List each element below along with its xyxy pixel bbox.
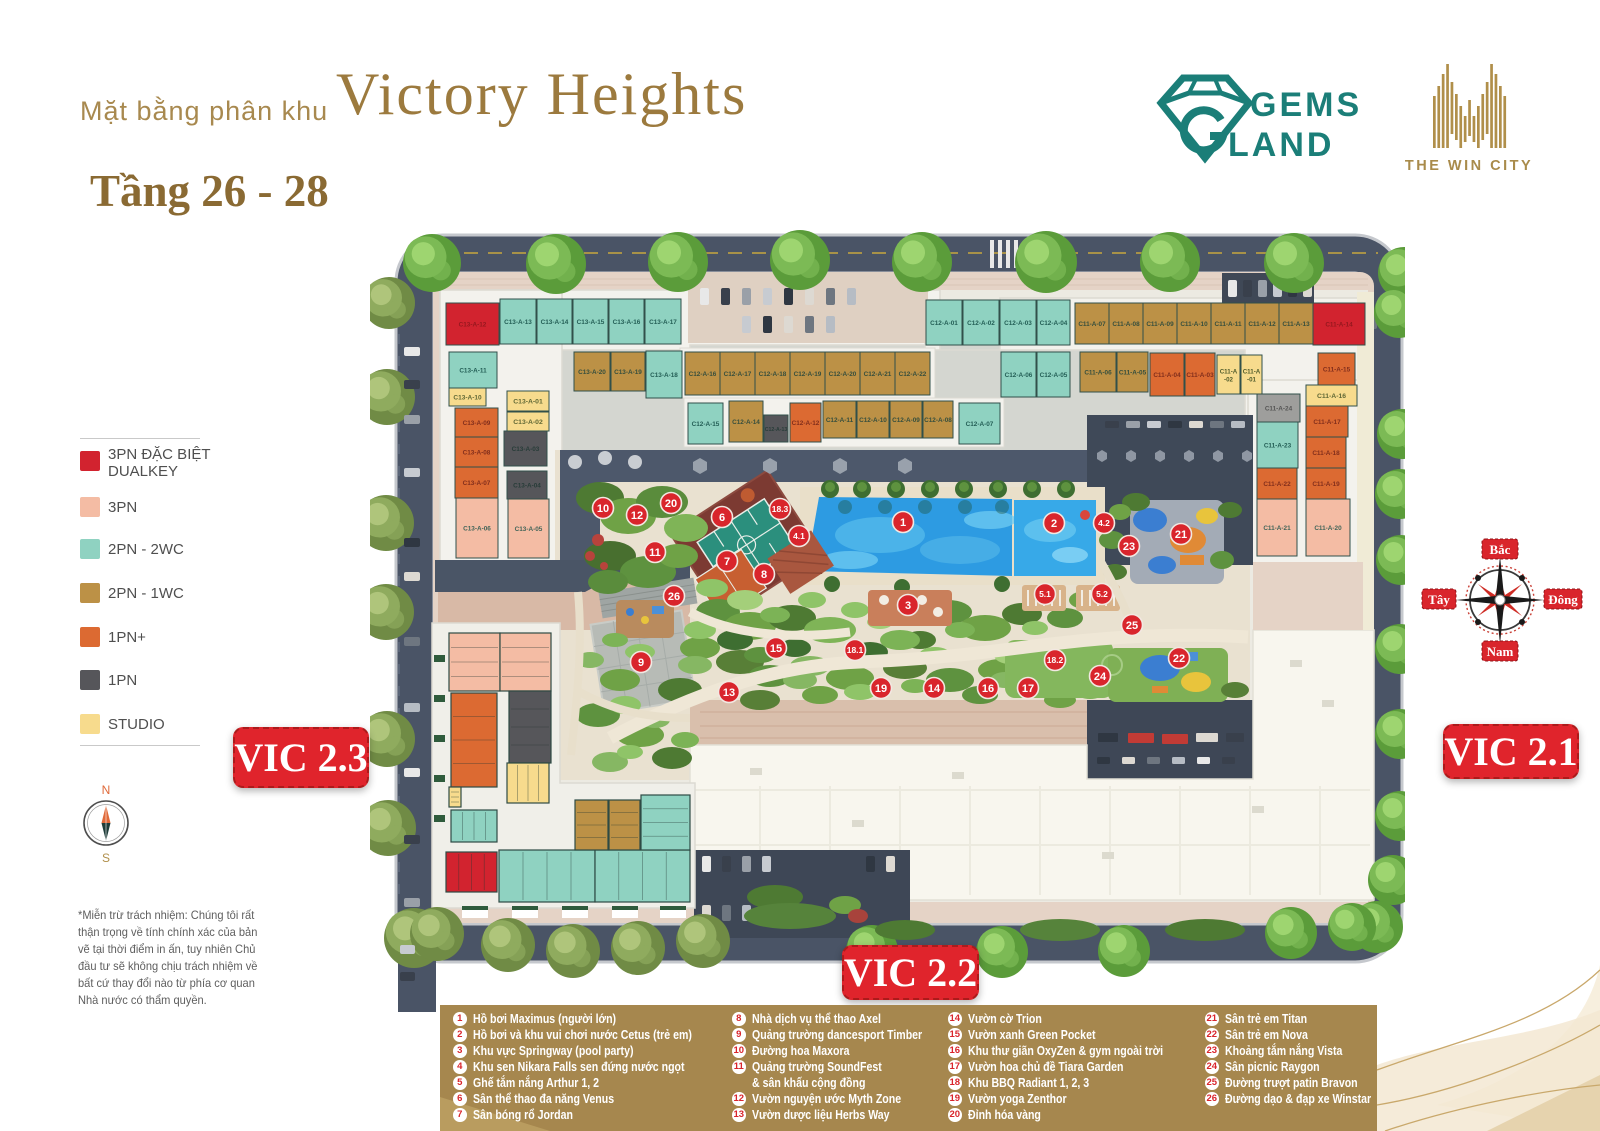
svg-text:4.1: 4.1 [793, 531, 805, 541]
svg-text:C13-A-20: C13-A-20 [578, 369, 606, 376]
svg-text:C13-A-17: C13-A-17 [649, 319, 677, 326]
svg-text:6: 6 [719, 512, 725, 524]
svg-text:C11-A-14: C11-A-14 [1325, 322, 1353, 329]
svg-text:21: 21 [1175, 529, 1187, 541]
svg-text:C11-A-23: C11-A-23 [1264, 443, 1292, 450]
svg-text:C12-A-07: C12-A-07 [966, 421, 994, 428]
svg-text:C12-A-17: C12-A-17 [724, 371, 752, 378]
svg-text:C13-A-19: C13-A-19 [614, 369, 642, 376]
svg-text:C11-A-15: C11-A-15 [1323, 367, 1351, 374]
svg-text:2: 2 [1051, 518, 1057, 530]
svg-text:C11-A-10: C11-A-10 [1180, 321, 1208, 328]
svg-text:C13-A-12: C13-A-12 [459, 322, 487, 329]
svg-text:GEMS: GEMS [1250, 86, 1362, 124]
svg-text:C12-A-03: C12-A-03 [1004, 320, 1032, 327]
svg-text:C13-A-08: C13-A-08 [463, 450, 491, 457]
svg-text:C12-A-02: C12-A-02 [967, 320, 995, 327]
svg-text:C13-A-02: C13-A-02 [513, 419, 543, 426]
svg-text:14: 14 [928, 683, 941, 695]
svg-text:C11-A: C11-A [1243, 369, 1261, 376]
svg-text:-01: -01 [1247, 377, 1257, 384]
svg-text:7: 7 [724, 556, 730, 568]
svg-text:18.1: 18.1 [847, 645, 864, 655]
svg-text:20: 20 [665, 498, 677, 510]
svg-text:C12-A-20: C12-A-20 [829, 371, 857, 378]
svg-text:C12-A-05: C12-A-05 [1040, 372, 1068, 379]
svg-text:C13-A-16: C13-A-16 [613, 319, 641, 326]
svg-text:C12-A-09: C12-A-09 [892, 417, 920, 424]
svg-text:5.2: 5.2 [1096, 589, 1108, 599]
svg-text:C13-A-05: C13-A-05 [515, 526, 543, 533]
svg-text:LAND: LAND [1228, 126, 1334, 164]
svg-text:C12-A-08: C12-A-08 [924, 417, 952, 424]
svg-text:C13-A-18: C13-A-18 [650, 372, 678, 379]
svg-text:C12-A-19: C12-A-19 [794, 371, 822, 378]
svg-text:12: 12 [631, 510, 643, 522]
svg-text:N: N [102, 783, 111, 797]
svg-text:C11-A-16: C11-A-16 [1317, 393, 1346, 400]
svg-text:3: 3 [905, 600, 911, 612]
svg-text:9: 9 [638, 657, 644, 669]
svg-text:C12-A-18: C12-A-18 [759, 371, 787, 378]
svg-text:C11-A-21: C11-A-21 [1263, 525, 1291, 532]
svg-text:THE WIN CITY: THE WIN CITY [1405, 158, 1533, 174]
svg-text:22: 22 [1173, 653, 1185, 665]
svg-text:18.2: 18.2 [1047, 655, 1064, 665]
svg-text:C13-A-09: C13-A-09 [463, 420, 491, 427]
svg-text:C13-A-10: C13-A-10 [453, 395, 482, 402]
svg-text:8: 8 [761, 569, 767, 581]
svg-text:15: 15 [770, 643, 782, 655]
svg-text:25: 25 [1126, 620, 1138, 632]
svg-text:5.1: 5.1 [1039, 589, 1051, 599]
svg-text:C11-A-05: C11-A-05 [1119, 370, 1147, 377]
svg-text:C12-A-16: C12-A-16 [689, 371, 717, 378]
svg-text:C11-A-06: C11-A-06 [1084, 370, 1112, 377]
svg-text:C12-A-14: C12-A-14 [732, 419, 760, 426]
svg-text:C12-A-10: C12-A-10 [859, 417, 887, 424]
svg-text:C11-A-11: C11-A-11 [1215, 321, 1242, 328]
svg-text:C12-A-12: C12-A-12 [792, 420, 820, 427]
svg-text:C11-A: C11-A [1220, 369, 1238, 376]
svg-text:C13-A-07: C13-A-07 [463, 480, 491, 487]
svg-text:13: 13 [723, 687, 735, 699]
svg-text:C11-A-09: C11-A-09 [1146, 321, 1174, 328]
svg-text:C11-A-18: C11-A-18 [1312, 450, 1340, 457]
svg-text:26: 26 [668, 591, 680, 603]
svg-text:C11-A-08: C11-A-08 [1112, 321, 1140, 328]
svg-text:C11-A-22: C11-A-22 [1263, 481, 1291, 488]
svg-text:Tây: Tây [1428, 592, 1450, 607]
svg-text:11: 11 [649, 547, 661, 559]
svg-text:4.2: 4.2 [1098, 518, 1110, 528]
svg-text:C11-A-17: C11-A-17 [1313, 419, 1341, 426]
svg-text:1: 1 [900, 517, 906, 529]
svg-text:C11-A-03: C11-A-03 [1186, 372, 1214, 379]
svg-text:C12-A-04: C12-A-04 [1040, 320, 1068, 327]
svg-text:C12-A-22: C12-A-22 [899, 371, 927, 378]
svg-text:S: S [102, 851, 110, 865]
svg-text:Nam: Nam [1487, 644, 1514, 659]
svg-text:19: 19 [875, 683, 887, 695]
svg-text:-02: -02 [1224, 377, 1234, 384]
svg-text:C13-A-03: C13-A-03 [512, 446, 540, 453]
svg-text:C13-A-13: C13-A-13 [504, 319, 532, 326]
svg-text:10: 10 [597, 503, 609, 515]
svg-text:C11-A-04: C11-A-04 [1153, 372, 1181, 379]
svg-text:C12-A-21: C12-A-21 [864, 371, 892, 378]
svg-text:24: 24 [1094, 671, 1107, 683]
svg-text:C13-A-04: C13-A-04 [513, 483, 541, 490]
svg-text:C12-A-15: C12-A-15 [692, 421, 720, 428]
svg-text:C11-A-24: C11-A-24 [1265, 406, 1293, 413]
svg-text:23: 23 [1123, 541, 1135, 553]
svg-text:Đông: Đông [1548, 592, 1578, 607]
svg-text:C11-A-20: C11-A-20 [1314, 525, 1342, 532]
svg-text:C13-A-11: C13-A-11 [459, 368, 487, 375]
svg-text:C11-A-19: C11-A-19 [1312, 481, 1340, 488]
svg-text:C11-A-12: C11-A-12 [1248, 321, 1276, 328]
svg-text:C11-A-13: C11-A-13 [1282, 321, 1310, 328]
svg-text:C13-A-15: C13-A-15 [577, 319, 605, 326]
svg-text:17: 17 [1022, 683, 1034, 695]
svg-text:C12-A-06: C12-A-06 [1005, 372, 1033, 379]
svg-text:Bắc: Bắc [1490, 542, 1511, 557]
svg-text:C12-A-13: C12-A-13 [765, 427, 788, 433]
svg-text:C13-A-14: C13-A-14 [541, 319, 569, 326]
svg-text:C12-A-01: C12-A-01 [930, 320, 958, 327]
svg-text:C13-A-06: C13-A-06 [463, 526, 491, 533]
svg-text:C11-A-07: C11-A-07 [1078, 321, 1106, 328]
svg-text:16: 16 [982, 683, 994, 695]
svg-text:C12-A-11: C12-A-11 [826, 417, 854, 424]
svg-text:18.3: 18.3 [772, 504, 789, 514]
svg-text:C13-A-01: C13-A-01 [513, 399, 543, 406]
